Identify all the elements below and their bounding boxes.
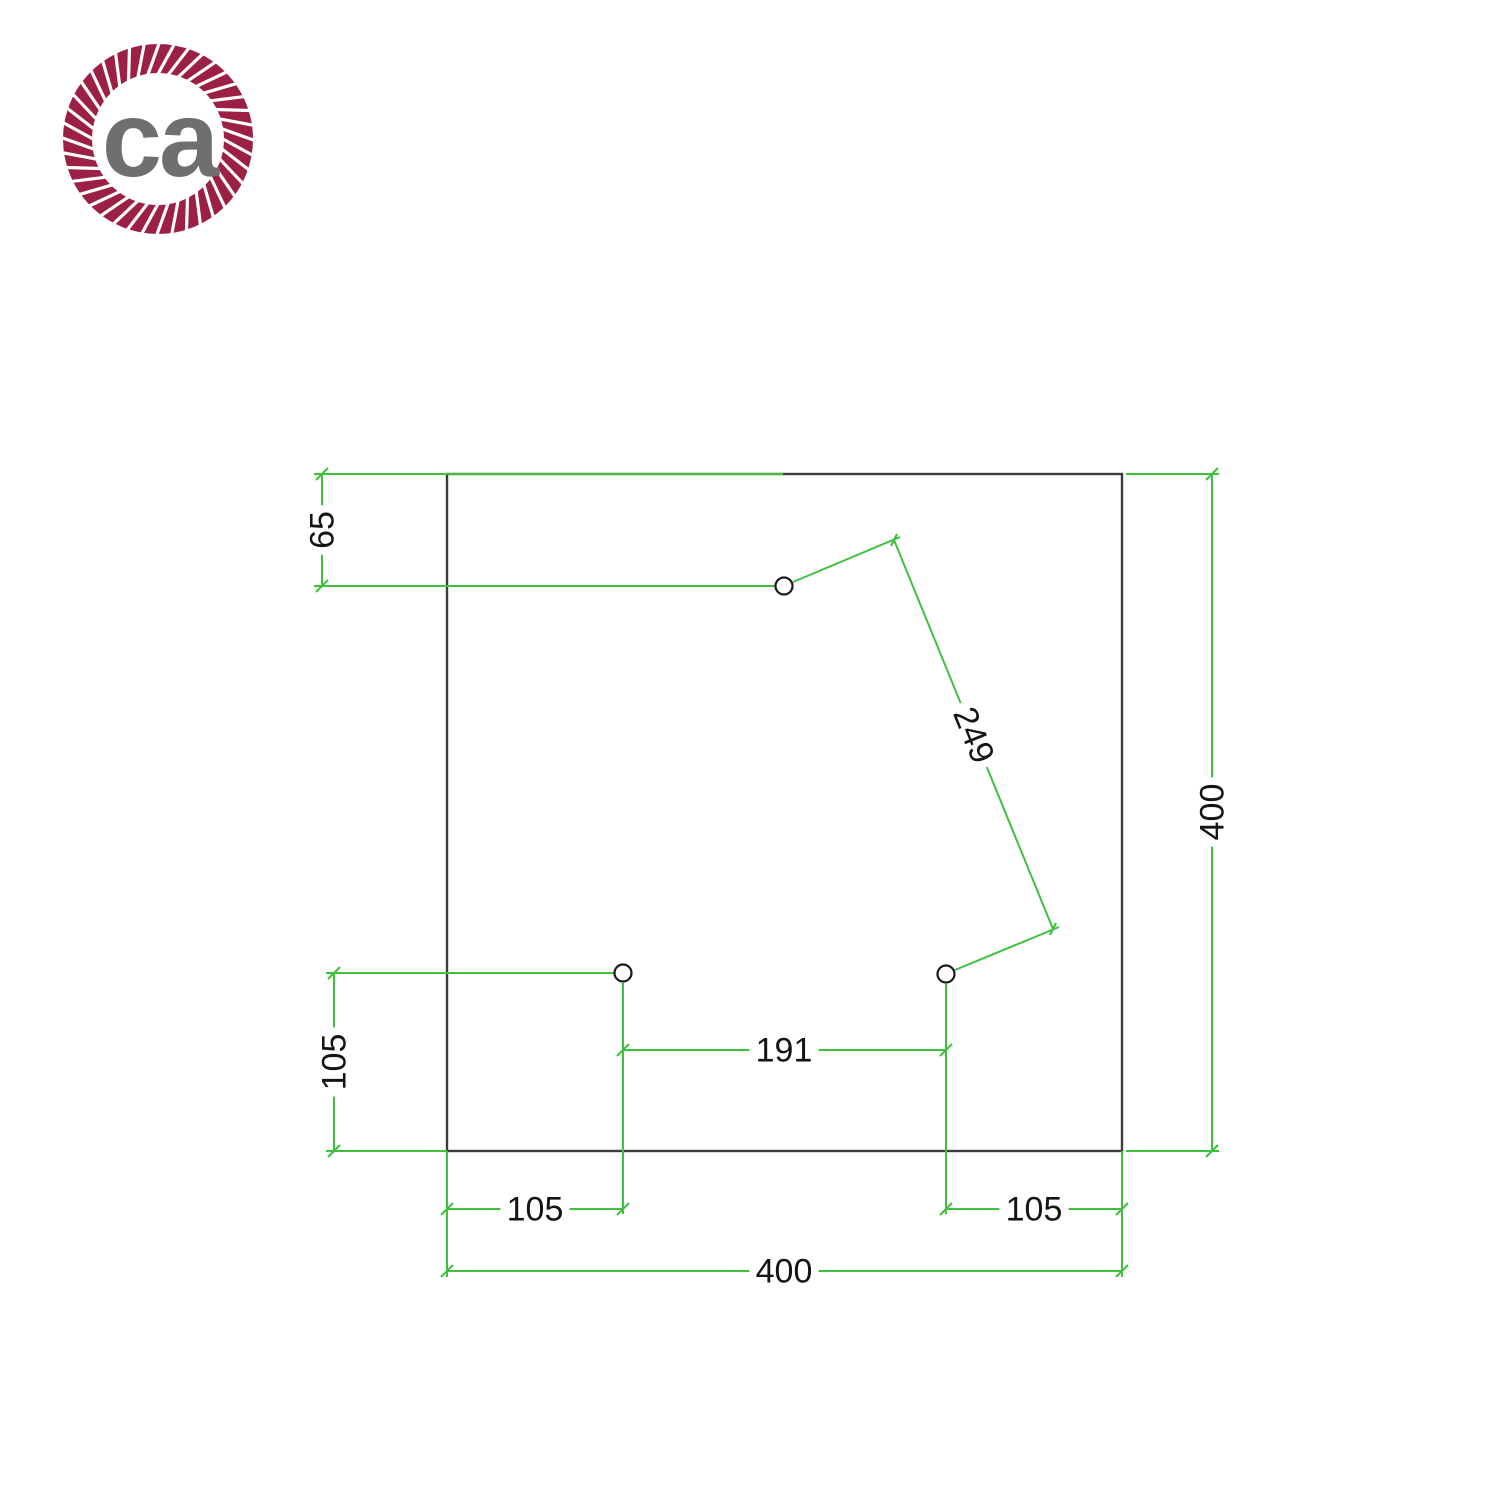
dimension-label: 191 [749,1032,818,1070]
dimension-label: 105 [316,1027,354,1096]
dimension-label-text: 400 [1194,784,1232,841]
dimension-line [793,537,900,582]
dimension-label: 400 [1194,777,1232,846]
dimension-label-text: 105 [316,1034,354,1091]
dimension-label: 65 [304,505,342,554]
dimension-label-text: 191 [756,1032,813,1070]
dimension-label: 105 [500,1191,569,1229]
dimension-label-text: 65 [304,511,342,549]
dimension-label: 249 [943,696,1004,774]
dimension-label: 105 [999,1191,1068,1229]
product-image-canvas: ca 65105400249191105105400 [0,0,1500,1500]
mounting-hole [615,965,632,982]
dimension-label-text: 105 [1006,1191,1063,1229]
dimension-label-text: 400 [756,1253,813,1291]
dimension-label-text: 105 [507,1191,564,1229]
technical-drawing: 65105400249191105105400 [0,0,1500,1500]
dimension-line [955,927,1059,970]
mounting-hole [938,966,955,983]
mounting-hole [776,578,793,595]
dimension-label: 400 [749,1253,818,1291]
